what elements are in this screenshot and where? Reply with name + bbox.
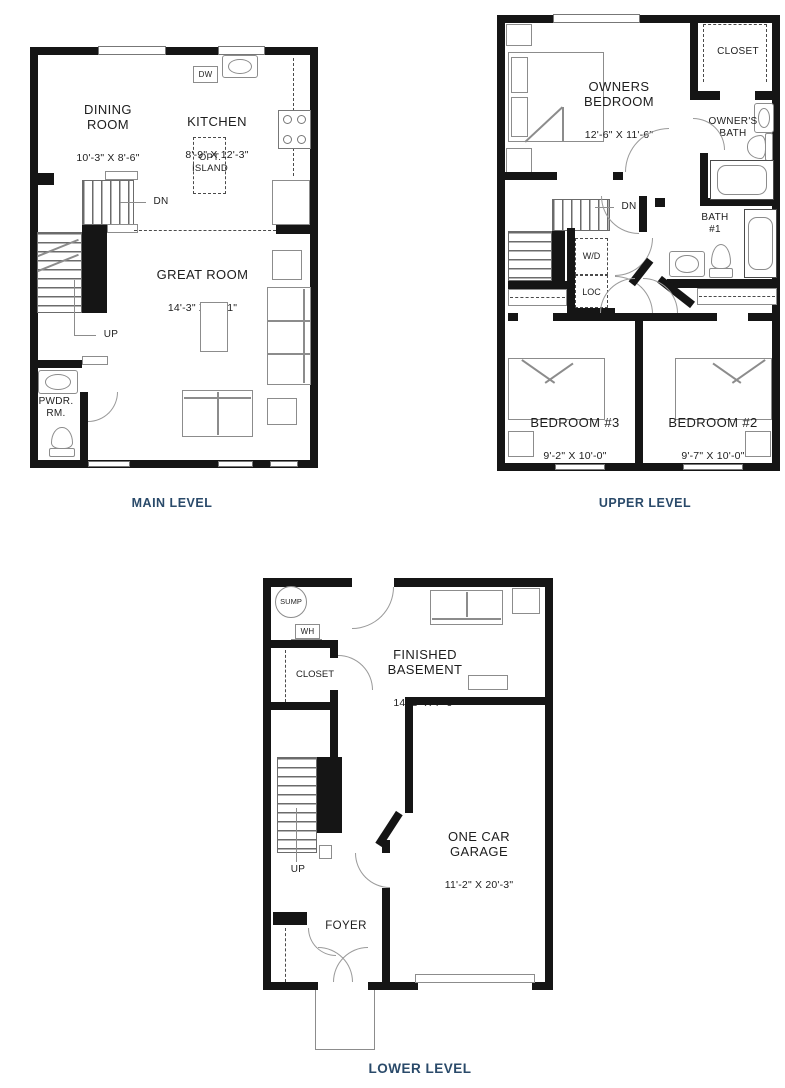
wall <box>748 313 780 321</box>
wall <box>273 912 307 925</box>
wall <box>330 690 338 757</box>
room-name: BEDROOM #3 <box>519 415 631 430</box>
console-table <box>468 675 508 690</box>
main-level-caption: MAIN LEVEL <box>57 496 287 510</box>
door-arc <box>88 392 118 422</box>
wall <box>382 888 390 982</box>
pillow <box>511 97 528 137</box>
closet-label: CLOSET <box>289 669 341 680</box>
pillow <box>511 57 528 93</box>
leader-line <box>120 202 146 203</box>
wall <box>310 47 318 468</box>
wall <box>755 91 780 100</box>
dishwasher-label: DW <box>193 70 218 79</box>
powder-room-sink <box>38 370 78 394</box>
upper-level-caption: UPPER LEVEL <box>530 496 760 510</box>
wall <box>545 578 553 990</box>
wall <box>690 15 698 100</box>
room-dims: 9'-7" X 10'-0" <box>657 450 769 462</box>
stairs-up-label: UP <box>96 329 126 341</box>
wall <box>553 313 635 321</box>
wall <box>30 173 54 185</box>
foyer-label: FOYER <box>310 920 382 934</box>
finished-basement-label: FINISHED BASEMENT 14'-2" X 7'-9" <box>375 628 475 729</box>
room-dims: 10'-3" X 8'-6" <box>52 152 164 164</box>
room-name: KITCHEN <box>161 114 273 129</box>
closet-rod-dashed <box>510 297 565 298</box>
wall <box>508 313 518 321</box>
leader-line <box>74 280 75 336</box>
stair-wall <box>82 225 107 313</box>
wall <box>567 228 575 316</box>
nightstand <box>506 24 532 46</box>
wall <box>394 578 553 587</box>
end-table <box>267 398 297 425</box>
room-name: FINISHED BASEMENT <box>375 647 475 678</box>
toilet <box>708 244 734 278</box>
porch-stoop <box>315 990 375 1050</box>
door-arc <box>333 947 368 982</box>
wall <box>405 697 553 705</box>
bathtub <box>710 160 774 200</box>
dining-room-label: DINING ROOM 10'-3" X 8'-6" <box>52 83 164 184</box>
wall <box>30 360 82 368</box>
washer-dryer-label: W/D <box>575 251 608 262</box>
wall <box>382 840 390 853</box>
wall <box>263 702 338 710</box>
sump-label: SUMP <box>275 598 307 607</box>
closet-rod-dashed <box>699 296 775 297</box>
window <box>270 461 298 467</box>
sofa-cushion-line <box>466 592 468 617</box>
upper-level-plan: OWNERS BEDROOM 12'-6" X 11'-6" CLOSET OW… <box>497 10 783 480</box>
sofa-back-line <box>432 618 501 620</box>
end-table <box>272 250 302 280</box>
lower-level-plan: SUMP WH CLOSET FINISHED BASEMENT 14'-2" … <box>263 578 553 1056</box>
range-stove <box>278 110 311 149</box>
stairs-up <box>37 232 82 313</box>
toilet <box>48 427 76 457</box>
stair-rail <box>107 224 138 233</box>
door-arc <box>355 853 390 888</box>
wall <box>30 47 318 55</box>
stair-wall <box>552 231 565 283</box>
kitchen-label: KITCHEN 8'-9" X 12'-3" <box>161 95 273 180</box>
room-dims: 9'-2" X 10'-0" <box>519 450 631 462</box>
bathtub <box>744 209 777 278</box>
room-name: GREAT ROOM <box>145 267 260 282</box>
wall <box>643 313 717 321</box>
wall <box>263 578 352 587</box>
sofa-back-line <box>303 289 305 383</box>
window <box>218 461 253 467</box>
wall <box>330 640 338 658</box>
garage-door <box>415 974 535 983</box>
bath1-sink <box>669 251 705 277</box>
bath1-label: BATH #1 <box>693 212 737 236</box>
window <box>88 461 130 467</box>
stairs-down-label: DN <box>146 196 176 208</box>
room-name: BEDROOM #2 <box>657 415 769 430</box>
end-table <box>512 588 540 614</box>
leader-line <box>74 335 96 336</box>
water-heater-label: WH <box>295 627 320 636</box>
garage-label: ONE CAR GARAGE 11'-2" X 20'-3" <box>415 810 543 911</box>
wall-cap <box>82 356 108 365</box>
wall <box>276 225 310 234</box>
wall <box>405 697 413 813</box>
closet-label: CLOSET <box>707 46 769 58</box>
room-dims: 8'-9" X 12'-3" <box>161 149 273 161</box>
room-dims: 11'-2" X 20'-3" <box>415 879 543 891</box>
stair-rail <box>105 171 138 180</box>
window <box>98 46 166 55</box>
room-name: OWNERS BEDROOM <box>555 79 683 110</box>
wall <box>690 91 720 100</box>
wall <box>508 281 567 289</box>
floor-plan: { "colors": { "wall": "#151515", "captio… <box>0 0 785 1088</box>
wall <box>655 198 665 207</box>
wall <box>635 313 643 463</box>
wall <box>497 172 557 180</box>
room-name: DINING ROOM <box>52 102 164 133</box>
wall <box>368 982 418 990</box>
room-name: ONE CAR GARAGE <box>415 829 543 860</box>
wall <box>639 196 647 232</box>
stair-newel <box>319 845 332 859</box>
stairs-lower-flight <box>508 231 552 281</box>
door-arc <box>352 587 394 629</box>
closet-dashed-line <box>285 650 286 702</box>
window <box>553 14 640 23</box>
main-level-plan: DW OPT. ISLAND DINING ROOM 10'-3" X 8'-6… <box>30 40 320 476</box>
wall <box>497 15 505 471</box>
stair-wall <box>317 757 342 833</box>
sofa-back-line <box>184 397 251 399</box>
bedroom3-label: BEDROOM #3 9'-2" X 10'-0" <box>519 396 631 481</box>
door-arc <box>338 655 373 690</box>
room-divider-dashed <box>134 230 276 231</box>
lower-level-caption: LOWER LEVEL <box>305 1061 535 1076</box>
powder-room-label: PWDR. RM. <box>30 396 82 420</box>
wall <box>263 982 318 990</box>
leader-line <box>296 808 297 862</box>
coffee-table <box>200 302 228 352</box>
bedroom2-label: BEDROOM #2 9'-7" X 10'-0" <box>657 396 769 481</box>
kitchen-counter <box>272 180 310 225</box>
nightstand <box>506 148 532 173</box>
kitchen-sink <box>222 55 258 78</box>
wall <box>532 982 553 990</box>
stairs-up-label: UP <box>283 864 313 876</box>
closet-dashed-line <box>285 928 286 982</box>
wall <box>667 279 780 288</box>
window <box>218 46 265 55</box>
wall <box>613 172 623 180</box>
wall <box>263 640 338 648</box>
